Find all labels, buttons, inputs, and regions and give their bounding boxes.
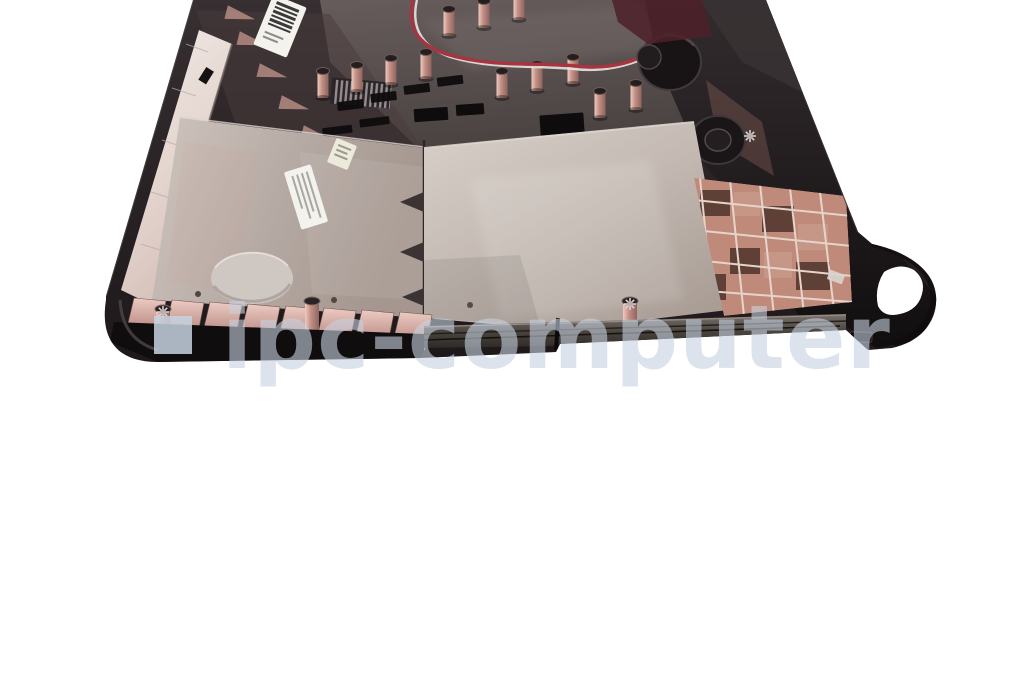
screw-post [316,68,331,102]
screw-post [384,55,399,89]
screw-post [593,88,608,122]
screw-post [442,6,457,40]
screw-post [350,62,365,96]
fan-boss-hub [705,129,731,151]
watermark-text: ipc-computer [222,286,891,389]
laptop-bottom-case-photo: ipc-computer [0,0,1024,680]
wire-anchor-boss [637,45,661,69]
watermark-logo-icon [154,316,192,354]
screw-post [477,0,492,31]
watermark: ipc-computer [154,286,891,389]
product-photo-canvas: ipc-computer [0,0,1024,680]
screw-post [495,68,510,102]
screw-post [419,49,434,83]
screw-post [629,80,644,114]
panel-highlight [300,152,424,300]
screw-post [512,0,527,23]
screw-hole [195,291,201,297]
